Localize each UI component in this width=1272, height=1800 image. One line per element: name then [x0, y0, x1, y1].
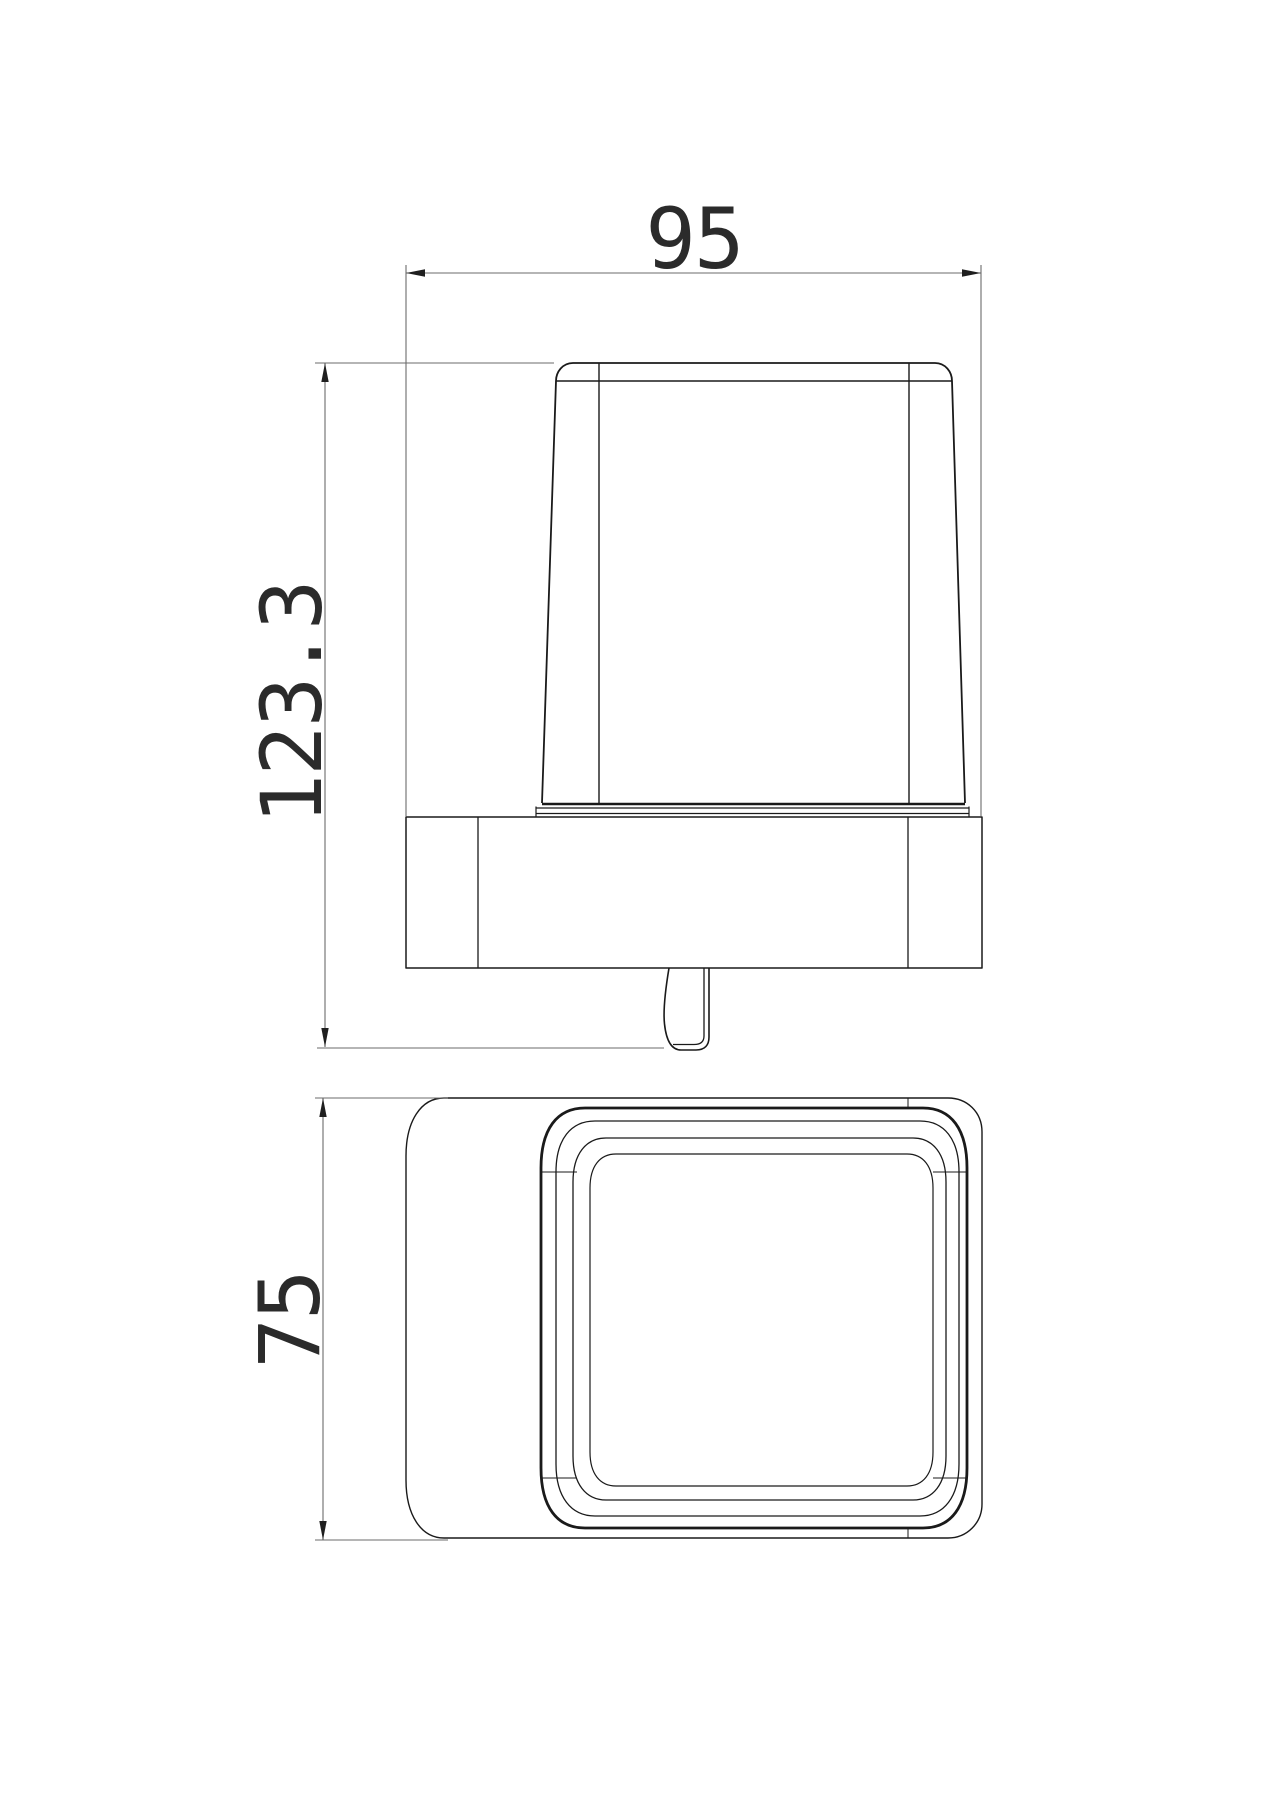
- width-arrow-right: [962, 269, 981, 276]
- cup-rim-ring3: [573, 1138, 946, 1500]
- height-arrow-bottom: [321, 1028, 328, 1047]
- dimension-height: 123.3: [243, 363, 664, 1048]
- spout-inner-line: [673, 968, 704, 1045]
- drawing-sheet: 95 123.3 75: [0, 0, 1272, 1800]
- dim-width-label: 95: [645, 190, 742, 288]
- cup-rim-ring2: [556, 1121, 959, 1516]
- width-arrow-left: [406, 269, 425, 276]
- cup-rim-ring4: [590, 1154, 933, 1486]
- cup-rim-outer: [541, 1108, 967, 1528]
- cup-outline: [542, 363, 965, 803]
- depth-arrow-bottom: [319, 1521, 326, 1540]
- holder-outer-outline: [406, 1098, 982, 1538]
- spout-outline: [664, 968, 709, 1050]
- depth-arrow-top: [319, 1098, 326, 1117]
- bracket-outline: [406, 817, 982, 968]
- front-view: [406, 363, 982, 1050]
- dimension-width: 95: [406, 190, 981, 816]
- technical-drawing: 95 123.3 75: [0, 0, 1272, 1800]
- dim-height-label: 123.3: [243, 582, 341, 825]
- dimension-depth: 75: [241, 1098, 448, 1540]
- height-arrow-top: [321, 363, 328, 382]
- dim-depth-label: 75: [241, 1271, 339, 1368]
- top-view: [406, 1098, 982, 1538]
